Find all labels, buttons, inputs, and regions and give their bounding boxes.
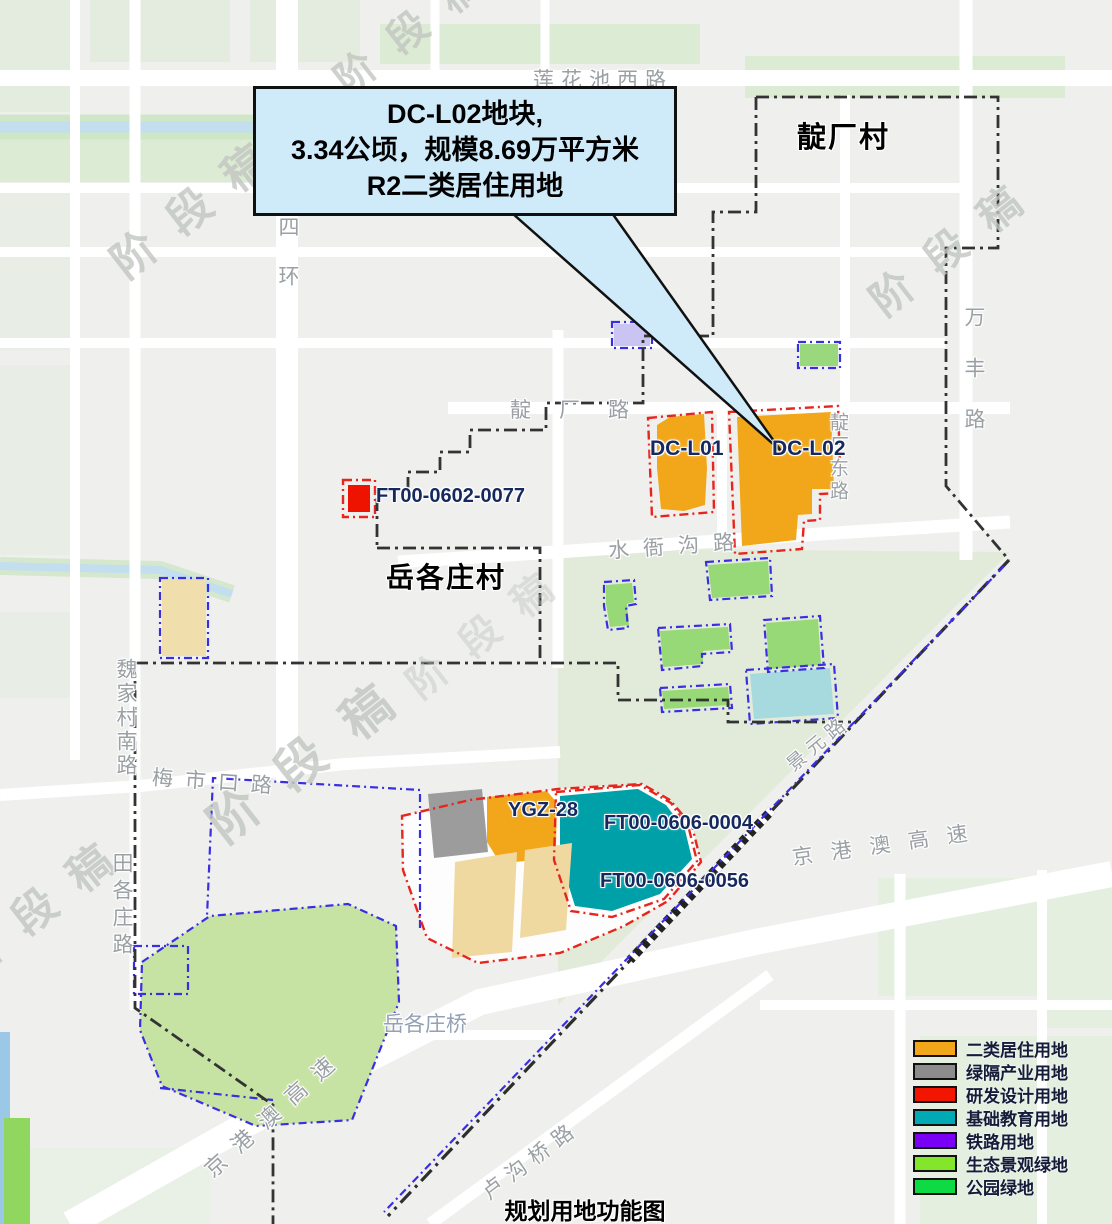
legend-label: 公园绿地 [966,1174,1034,1199]
legend-swatch-park-green [913,1178,957,1195]
parcel-tan [162,580,206,656]
legend-label: 研发设计用地 [966,1082,1068,1107]
road-label-yuegezhuang-bridge: 岳各庄桥 [383,1008,467,1038]
parcel-label-ft-0606-0056: FT00-0606-0056 [600,870,749,893]
legend-swatch-railway [913,1132,957,1149]
village-label-dianchang: 靛厂村 [797,114,890,156]
legend-swatch-rnd [913,1086,957,1103]
legend-label: 基础教育用地 [966,1105,1068,1130]
parcel-green [766,619,821,669]
parcel-ft-0602-0077 [348,485,370,512]
legend-swatch-eco-green [913,1155,957,1172]
legend-label: 二类居住用地 [966,1036,1068,1061]
callout-line-2: 3.34公顷，规模8.69万平方米 [256,133,674,169]
parcel-label-dc-l02: DC-L02 [772,437,846,461]
legend-row: 研发设计用地 [913,1087,1068,1102]
legend-label: 绿隔产业用地 [966,1059,1068,1084]
parcel-label-ygz-28: YGZ-28 [508,799,578,822]
parcel-label-ft-0602-0077: FT00-0602-0077 [376,485,525,508]
legend-label: 生态景观绿地 [966,1151,1068,1176]
park-block [90,0,230,62]
park-block [0,365,78,555]
parcel-label-ft-0606-0004: FT00-0606-0004 [604,812,753,835]
legend-row: 基础教育用地 [913,1110,1068,1125]
parcel-dc-l02 [737,412,834,546]
callout-box: DC-L02地块, 3.34公顷，规模8.69万平方米 R2二类居住用地 [253,86,677,216]
road-label-weijiacun-south: 魏家村南路 [110,658,140,778]
legend-row: 公园绿地 [913,1179,1068,1194]
road-label-wanfeng: 万丰路 [958,306,988,459]
legend-row: 生态景观绿地 [913,1156,1068,1171]
parcel-tan [520,843,572,938]
legend-row: 二类居住用地 [913,1041,1068,1056]
map-title: 规划用地功能图 [420,1192,750,1224]
legend-row: 铁路用地 [913,1133,1068,1148]
legend-row: 绿隔产业用地 [913,1064,1068,1079]
callout-line-1: DC-L02地块, [256,97,674,133]
legend-label: 铁路用地 [966,1128,1034,1153]
parcel-tan [452,852,517,958]
road-label-dianchang: 靛厂路 [510,394,657,424]
village-label-yuegezhuang: 岳各庄村 [386,556,506,596]
legend-swatch-education [913,1109,957,1126]
green-strip [4,1118,30,1224]
planning-map: 阶段稿 阶段稿 阶段稿 阶段稿 阶段稿 阶段稿 莲花池西路 四环 靛厂路 水衙沟… [0,0,1112,1224]
legend-swatch-industry [913,1063,957,1080]
legend: 二类居住用地 绿隔产业用地 研发设计用地 基础教育用地 铁路用地 生态景观绿地 … [913,1041,1068,1202]
parcel-label-dc-l01: DC-L01 [650,437,724,461]
road-label-sihuan: 四环 [272,216,302,314]
legend-swatch-residential [913,1040,957,1057]
parcel-dc-l01 [657,414,707,511]
park-block [0,0,72,112]
callout-line-3: R2二类居住用地 [256,169,674,205]
parcel-green [708,561,770,598]
road-label-tiangezhuang: 田各庄路 [106,852,136,960]
parcel-green [800,344,838,366]
parcel-cyan [750,668,834,719]
park-block [0,190,78,350]
park-block [0,612,72,698]
